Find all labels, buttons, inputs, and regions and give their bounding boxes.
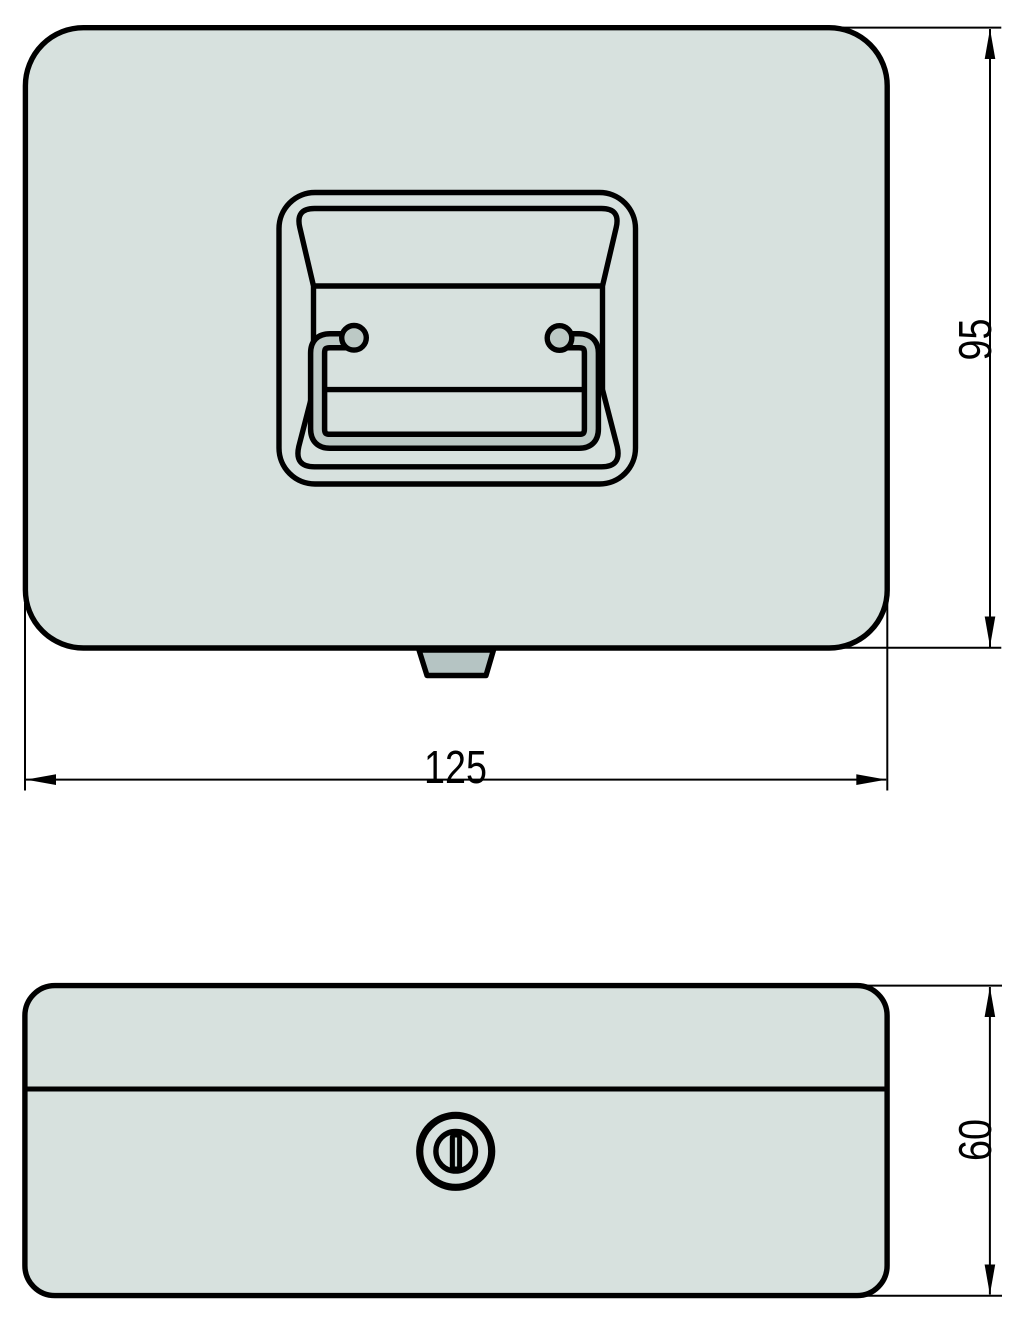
svg-text:95: 95 bbox=[949, 319, 1000, 361]
svg-text:60: 60 bbox=[949, 1119, 1000, 1161]
svg-text:125: 125 bbox=[424, 741, 487, 792]
